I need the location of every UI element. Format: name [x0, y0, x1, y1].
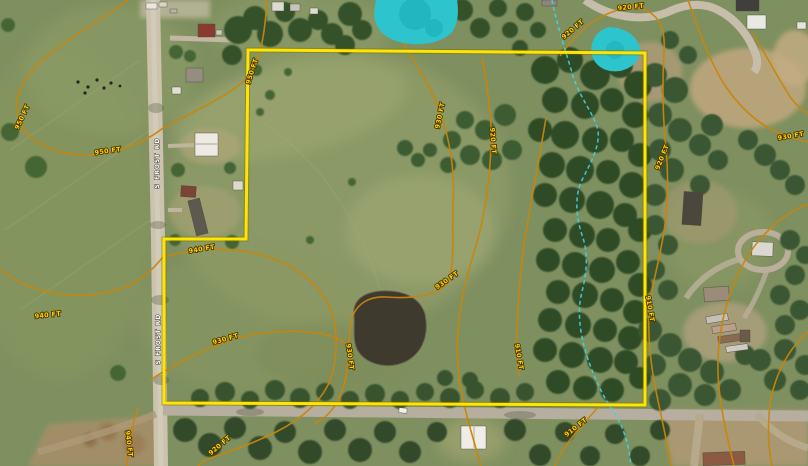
- dark-roof-house: [736, 0, 759, 11]
- red-roof-house: [198, 24, 215, 37]
- map-canvas[interactable]: 950 FT 950 FT 950 FT 940 FT 940 FT 940 F…: [0, 0, 808, 466]
- long-dark-building: [682, 191, 703, 225]
- farm-house: [181, 186, 197, 198]
- road-label-frost-south: S FROST RD: [156, 314, 162, 365]
- aerial-map: 950 FT 950 FT 950 FT 940 FT 940 FT 940 F…: [0, 0, 808, 466]
- road-label-frost-north: S FROST RD: [155, 138, 161, 189]
- vehicle: [399, 408, 407, 414]
- gray-roof-house: [186, 68, 203, 82]
- white-roof-house: [747, 15, 766, 29]
